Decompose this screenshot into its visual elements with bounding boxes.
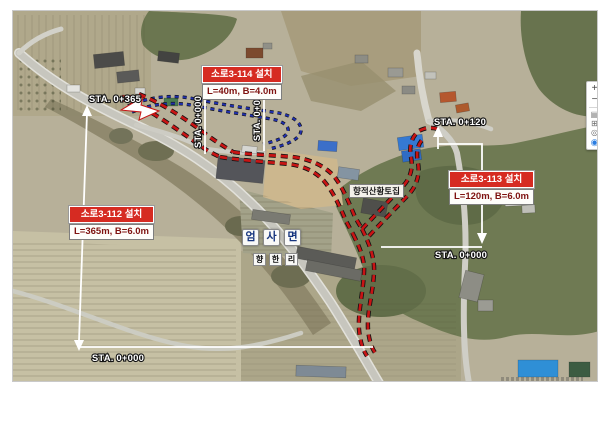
split-view-icon[interactable]: ⊞ — [588, 119, 598, 128]
town-label-char: 면 — [284, 229, 301, 246]
callout-route114-title: 소로3-114 설치 — [202, 66, 282, 83]
sta-label-route113-bottom: STA. 0+000 — [435, 250, 487, 261]
map-toolbar: + − ▤ ⊞ ◎ ◉ — [586, 81, 598, 150]
location-pin-icon[interactable]: ◉ — [588, 137, 598, 148]
callout-route112-spec: L=365m, B=6.0m — [69, 224, 154, 241]
map-viewport[interactable]: STA. 0+365 STA. 0+000 STA. 0+000 STA. 0+… — [12, 10, 598, 382]
callout-route113-title: 소로3-113 설치 — [449, 171, 534, 188]
village-label-char: 한 — [269, 253, 282, 266]
town-label: 엄사면 — [242, 227, 305, 246]
callout-route112: 소로3-112 설치 L=365m, B=6.0m — [69, 206, 154, 240]
town-label-char: 사 — [263, 229, 280, 246]
callout-route112-title: 소로3-112 설치 — [69, 206, 154, 223]
sta-label-route113-top: STA. 0+120 — [434, 117, 486, 128]
village-label: 향한리 — [253, 249, 301, 267]
target-icon[interactable]: ◎ — [588, 128, 598, 137]
toolbar-divider — [589, 107, 598, 108]
map-attribution-watermark — [501, 377, 583, 382]
callout-route114-spec: L=40m, B=4.0m — [202, 84, 282, 101]
sta-label-route112-top: STA. 0+365 — [89, 94, 142, 105]
zoom-in-button[interactable]: + — [588, 83, 598, 94]
village-label-char: 리 — [285, 253, 298, 266]
page: { "map": { "annotations": { "route112": … — [0, 0, 600, 424]
sta-label-route114-left: STA. 0+000 — [193, 96, 204, 148]
zoom-out-button[interactable]: − — [588, 94, 598, 105]
town-label-char: 엄 — [242, 229, 259, 246]
callout-route113: 소로3-113 설치 L=120m, B=6.0m — [449, 171, 534, 205]
callout-route114: 소로3-114 설치 L=40m, B=4.0m — [202, 66, 282, 100]
poi-label: 향적산황토집 — [349, 184, 404, 198]
layers-icon[interactable]: ▤ — [588, 110, 598, 119]
sta-label-route112-bottom: STA. 0+000 — [92, 353, 144, 364]
village-label-char: 향 — [253, 253, 266, 266]
callout-route113-spec: L=120m, B=6.0m — [449, 189, 534, 206]
